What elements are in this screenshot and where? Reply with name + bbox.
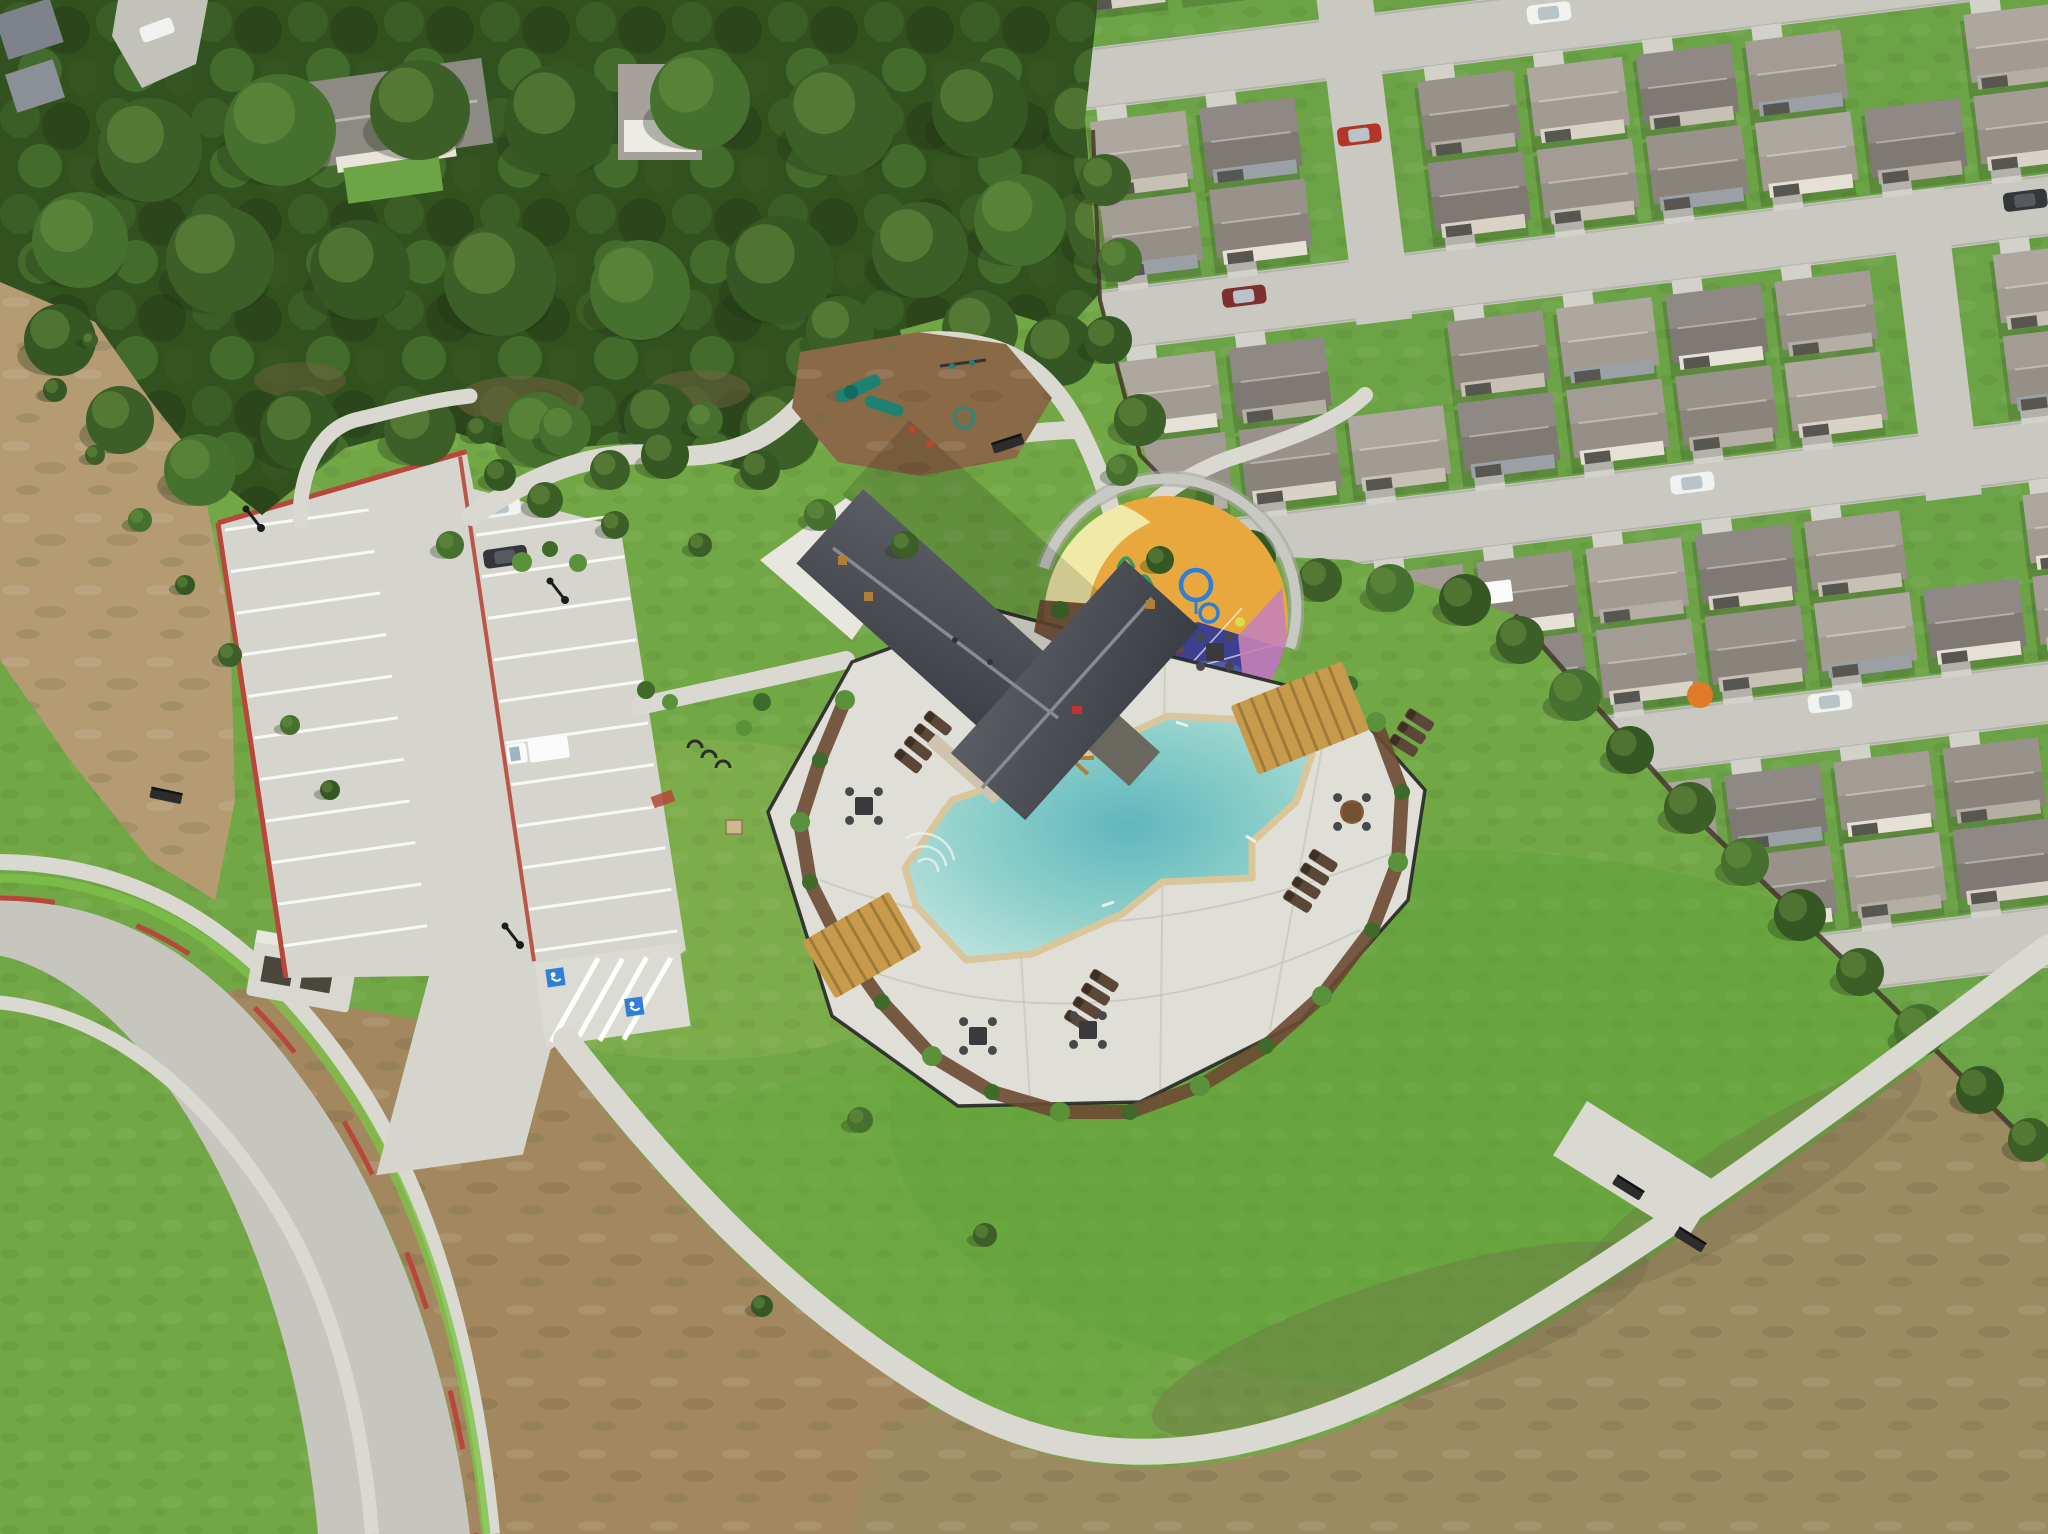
tree-highlight <box>880 209 933 262</box>
tree-highlight <box>1088 320 1114 346</box>
shrub <box>1394 784 1410 800</box>
tree-highlight <box>40 199 93 252</box>
tree-highlight <box>322 782 333 793</box>
shrub <box>790 812 810 832</box>
shrub <box>753 693 771 711</box>
tree-highlight <box>177 577 188 588</box>
tree-highlight <box>690 535 703 548</box>
tree-highlight <box>1083 158 1112 187</box>
patio-chair <box>1333 822 1342 831</box>
play-ball <box>1235 617 1245 627</box>
tree-highlight <box>599 248 654 303</box>
shrub <box>1122 1104 1138 1120</box>
scene-canvas <box>0 0 2048 1534</box>
patio-table <box>855 797 873 815</box>
patio-table <box>1079 1021 1097 1039</box>
tree-highlight <box>593 453 615 475</box>
tree-highlight <box>812 301 849 338</box>
tree-highlight <box>1668 786 1697 815</box>
tree-highlight <box>659 58 714 113</box>
patio-chair <box>959 1017 968 1026</box>
roof-vent <box>952 637 958 643</box>
tree-highlight <box>893 533 908 548</box>
patio-chair <box>1362 822 1371 831</box>
tree-highlight <box>940 69 993 122</box>
ground-grate <box>726 820 742 834</box>
shrub <box>736 720 752 736</box>
tree-highlight <box>1840 952 1866 978</box>
tree-highlight <box>170 439 210 479</box>
tree-highlight <box>1109 456 1127 474</box>
patio-chair <box>1225 633 1234 642</box>
tree-highlight <box>1102 241 1126 265</box>
patio-chair <box>988 1046 997 1055</box>
shrub <box>812 752 828 768</box>
patio-chair <box>959 1046 968 1055</box>
tree-highlight <box>130 510 143 523</box>
shrub <box>569 554 587 572</box>
tree-highlight <box>1960 1070 1986 1096</box>
tree-highlight <box>794 72 856 134</box>
patio-chair <box>1196 662 1205 671</box>
shrub <box>1364 922 1380 938</box>
tree-highlight <box>543 408 572 437</box>
tree-highlight <box>630 389 670 429</box>
lamp-head <box>243 506 250 513</box>
tree-highlight <box>468 418 483 433</box>
windshield <box>509 746 521 761</box>
tree-highlight <box>690 405 710 425</box>
car-roof <box>1681 475 1703 490</box>
shrub <box>542 541 558 557</box>
tree-highlight <box>1148 548 1163 563</box>
tree-highlight <box>1610 730 1636 756</box>
handicap-symbol-icon <box>545 967 565 987</box>
tree-highlight <box>603 513 618 528</box>
patio-chair <box>1098 1011 1107 1020</box>
shrub <box>637 681 655 699</box>
shrub <box>922 1046 942 1066</box>
shrub <box>512 552 532 572</box>
tree-highlight <box>1500 620 1526 646</box>
tree-highlight <box>1118 398 1147 427</box>
tree-highlight <box>45 380 58 393</box>
tree-highlight <box>982 181 1033 232</box>
tree-highlight <box>530 485 550 505</box>
patio-chair <box>1069 1040 1078 1049</box>
shrub <box>874 994 890 1010</box>
patio-chair <box>845 787 854 796</box>
pavilion-post <box>838 556 847 565</box>
patio-chair <box>1333 793 1342 802</box>
lamp-head <box>502 923 509 930</box>
tree-highlight <box>1725 842 1751 868</box>
car-roof <box>2014 193 2036 208</box>
tree-highlight <box>92 391 129 428</box>
tree-highlight <box>2012 1121 2036 1145</box>
tree-highlight <box>487 461 505 479</box>
tree-highlight <box>1553 673 1582 702</box>
tree-highlight <box>234 82 296 144</box>
tree-highlight <box>30 309 70 349</box>
tree-highlight <box>735 224 794 283</box>
car-roof <box>1537 5 1559 20</box>
tree-highlight <box>849 1109 863 1123</box>
shrub <box>1050 1102 1070 1122</box>
tree-highlight <box>267 396 311 440</box>
shrub <box>1312 986 1332 1006</box>
tree-highlight <box>175 214 234 273</box>
patio-chair <box>1225 662 1234 671</box>
tree-highlight <box>1443 578 1472 607</box>
patio-table <box>969 1027 987 1045</box>
shrub <box>662 694 678 710</box>
tree-highlight <box>743 453 765 475</box>
orange-patio-umbrella <box>1687 682 1713 708</box>
tree-highlight <box>319 228 374 283</box>
red-cooler <box>1072 706 1082 714</box>
tree-highlight <box>220 645 233 658</box>
car-roof <box>1348 127 1370 142</box>
playground-tower <box>844 385 858 399</box>
shrub <box>1190 1076 1210 1096</box>
shrub <box>984 1084 1000 1100</box>
tree-highlight <box>1030 319 1070 359</box>
tree-highlight <box>1370 568 1396 594</box>
tree-highlight <box>107 106 164 163</box>
pavilion-post <box>1146 600 1155 609</box>
shrub <box>835 690 855 710</box>
tree-highlight <box>645 435 671 461</box>
shrub <box>1366 712 1386 732</box>
tree-highlight <box>454 232 516 294</box>
swing-seat <box>969 360 975 366</box>
patio-chair <box>845 816 854 825</box>
aerial-photo-community-amenity-center <box>0 0 2048 1534</box>
shrub <box>1388 852 1408 872</box>
tree-highlight <box>379 68 434 123</box>
tree-highlight <box>1778 893 1807 922</box>
lamp-head <box>547 578 554 585</box>
patio-chair <box>874 816 883 825</box>
roof-vent <box>987 659 993 665</box>
patio-chair <box>1098 1040 1107 1049</box>
car-roof <box>1818 694 1840 709</box>
tree-highlight <box>1302 561 1326 585</box>
tree-highlight <box>753 1297 765 1309</box>
handicap-symbol-icon <box>624 997 644 1017</box>
car-roof <box>1232 288 1254 303</box>
patio-chair <box>988 1017 997 1026</box>
tree-highlight <box>514 72 576 134</box>
patio-chair <box>874 787 883 796</box>
tree-highlight <box>282 717 293 728</box>
patio-chair <box>1196 633 1205 642</box>
swing-seat <box>949 363 955 369</box>
tree-highlight <box>975 1225 988 1238</box>
shrub <box>802 874 818 890</box>
patio-chair <box>1362 793 1371 802</box>
tree-highlight <box>438 533 453 548</box>
table-umbrella <box>1340 800 1364 824</box>
pavilion-post <box>864 592 873 601</box>
tree-highlight <box>87 447 98 458</box>
tree-highlight <box>807 501 825 519</box>
shrub <box>1258 1038 1274 1054</box>
patio-chair <box>1069 1011 1078 1020</box>
patio-table <box>1206 643 1224 661</box>
tree-highlight <box>83 333 92 342</box>
